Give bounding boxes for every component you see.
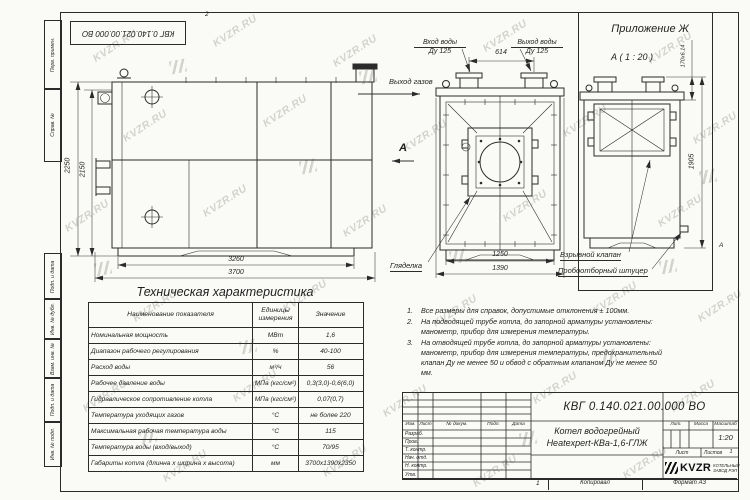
dim-614: 614 [486, 49, 516, 56]
product-name-line2: Heatexpert-КВа-1,6-ГЛЖ [547, 438, 648, 450]
sampling-fitting-label: Пробоотборный штуцер [558, 266, 648, 277]
copied-label: Копировал [548, 480, 642, 486]
col-podp: Подп. [481, 422, 506, 427]
note-number: 2. [407, 317, 421, 337]
sheet-label: Лист [663, 450, 701, 456]
table-cell: 0,3(3,0)-0,6(6,0) [299, 376, 362, 391]
table-cell: не более 220 [299, 408, 362, 423]
drawing-sheet: { "page": { "watermark_text": "KVZR.RU" … [0, 0, 750, 500]
dim-2150: 2150 [79, 162, 86, 178]
table-cell: мм [253, 456, 299, 471]
section-arrow-label: А [399, 142, 407, 154]
frame-label-text: Инв. № дубл. [50, 303, 56, 335]
table-cell: °С [253, 408, 299, 423]
sheets-label: Листов [701, 450, 725, 456]
mass-label: Масса [689, 422, 713, 427]
note-text: Все размеры для справок, допустимые откл… [421, 306, 665, 316]
table-cell: Диапазон рабочего регулирования [89, 344, 253, 359]
table-row: Температура воды (вход/выход)°С70/95 [89, 440, 363, 456]
col-list: Лист [418, 422, 433, 427]
dim-3260: 3260 [216, 256, 256, 263]
dim-1390: 1390 [482, 265, 518, 272]
appendix-title: Приложение Ж [595, 23, 705, 35]
note-item: 1.Все размеры для справок, допустимые от… [407, 306, 665, 316]
dim-2250: 2250 [64, 158, 71, 174]
water-inlet-dn: Ду 125 [414, 48, 466, 55]
kvzr-bars-icon [665, 462, 678, 474]
water-outlet-dn: Ду 125 [511, 48, 563, 55]
water-outlet-label: Выход воды Ду 125 [511, 39, 563, 55]
zone-bottom: 1 [536, 480, 540, 487]
table-cell: Температура уходящих газов [89, 408, 253, 423]
table-cell: МПа (кгс/см²) [253, 376, 299, 391]
spec-col-name: Наименование показателя [89, 303, 253, 327]
spec-col-value: Значение [299, 303, 362, 327]
table-cell: 0,07(0,7) [299, 392, 362, 407]
table-cell: 3700х1390х2350 [299, 456, 362, 471]
sheets-value: 1 [725, 449, 737, 455]
top-stamp: КВГ 0.140.021.00.000 ВО [70, 21, 186, 45]
company-name: КОТЕЛЬНЫЙ ЗАВОД РЭП [713, 463, 739, 474]
dim-1905: 1905 [688, 154, 695, 170]
gas-outlet-label: Выход газов [389, 77, 433, 86]
table-cell: Максимальная рабочая температура воды [89, 424, 253, 439]
table-cell: 115 [299, 424, 362, 439]
frame-label-podp-data-2: Подп. и дата [44, 377, 62, 423]
product-name: Котел водогрейный Heatexpert-КВа-1,6-ГЛЖ [531, 421, 663, 455]
table-cell: 70/95 [299, 440, 362, 455]
table-cell: °С [253, 440, 299, 455]
note-number: 1. [407, 306, 421, 316]
frame-label-inv-dubl: Инв. № дубл. [44, 298, 62, 340]
frame-label-inv-podl: Инв. № подл. [44, 421, 62, 467]
scale-label: Масштаб [713, 422, 738, 427]
table-cell: МПа (кгс/см²) [253, 392, 299, 407]
company-logo: KVZR КОТЕЛЬНЫЙ ЗАВОД РЭП [665, 458, 737, 478]
dim-170: 170x6.14 [680, 45, 686, 68]
row-razrab: Разраб. [405, 431, 423, 437]
frame-label-text: Перв. примен. [50, 38, 56, 72]
title-block: КВГ 0.140.021.00.000 ВО Котел водогрейны… [402, 392, 739, 480]
spec-table: Наименование показателя Единицы измерени… [88, 302, 364, 472]
spec-table-body: Номинальная мощностьМВт1,6Диапазон рабоч… [89, 328, 363, 471]
water-inlet-name: Вход воды [414, 39, 466, 48]
table-cell: % [253, 344, 299, 359]
frame-label-text: Справ. № [50, 113, 56, 137]
table-cell: МВт [253, 328, 299, 343]
table-cell: Рабочее давление воды [89, 376, 253, 391]
table-row: Диапазон рабочего регулирования%40-100 [89, 344, 363, 360]
spec-col-units: Единицы измерения [253, 303, 299, 327]
product-name-line1: Котел водогрейный [554, 426, 640, 438]
note-item: 2.На подводящей трубе котла, до запорной… [407, 317, 665, 337]
table-row: Номинальная мощностьМВт1,6 [89, 328, 363, 344]
note-text: На отводящей трубе котла, до запорной ар… [421, 338, 665, 378]
notes-block: 1.Все размеры для справок, допустимые от… [407, 306, 665, 380]
dim-3700: 3700 [216, 269, 256, 276]
table-row: Гидравлическое сопротивление котлаМПа (к… [89, 392, 363, 408]
col-izm: Изм. [403, 422, 418, 427]
frame-label-sprav: Справ. № [44, 88, 62, 162]
table-row: Максимальная рабочая температура воды°С1… [89, 424, 363, 440]
table-cell: °С [253, 424, 299, 439]
row-nkontr: Н. контр. [405, 463, 428, 469]
table-cell: Температура воды (вход/выход) [89, 440, 253, 455]
scale-value: 1:20 [713, 433, 738, 442]
water-inlet-label: Вход воды Ду 125 [414, 39, 466, 55]
table-cell: Расход воды [89, 360, 253, 375]
note-number: 3. [407, 338, 421, 378]
note-text: На подводящей трубе котла, до запорной а… [421, 317, 665, 337]
company-name-line2: ЗАВОД РЭП [713, 468, 739, 473]
row-tkontr: Т. контр. [405, 447, 427, 453]
zone-right: А [719, 242, 723, 249]
frame-label-podp-data-1: Подп. и дата [44, 253, 62, 300]
table-cell: Габариты котла (длинна х ширина х высота… [89, 456, 253, 471]
col-data: Дата [506, 422, 531, 427]
top-stamp-text: КВГ 0.140.021.00.000 ВО [82, 29, 175, 38]
row-prov: Пров. [405, 439, 418, 445]
kvzr-logo-text: KVZR [680, 462, 711, 474]
table-cell: 56 [299, 360, 362, 375]
spec-table-header: Наименование показателя Единицы измерени… [89, 303, 363, 328]
table-cell: Гидравлическое сопротивление котла [89, 392, 253, 407]
sight-glass-label: Гляделка [390, 261, 422, 272]
dim-1250: 1250 [482, 251, 518, 258]
row-utv: Утв. [405, 472, 416, 478]
appendix-view-label: А ( 1 : 20 ) [582, 52, 682, 62]
frame-label-perv-primen: Перв. примен. [44, 20, 62, 90]
frame-label-text: Подп. и дата [50, 260, 56, 292]
spec-table-title: Техническая характеристика [105, 285, 345, 299]
format-label: Формат А3 [642, 480, 737, 486]
zone-top: 2 [205, 11, 209, 18]
table-row: Рабочее давление водыМПа (кгс/см²)0,3(3,… [89, 376, 363, 392]
explosion-valve-label: Взрывной клапан [560, 250, 621, 261]
table-cell: м³/ч [253, 360, 299, 375]
water-outlet-name: Выход воды [511, 39, 563, 48]
frame-label-text: Взам. инв. № [50, 342, 56, 374]
col-docnum: № докум. [433, 422, 481, 427]
table-row: Расход водым³/ч56 [89, 360, 363, 376]
frame-label-vzam-inv: Взам. инв. № [44, 338, 62, 379]
doc-number: КВГ 0.140.021.00.000 ВО [531, 393, 738, 421]
note-item: 3.На отводящей трубе котла, до запорной … [407, 338, 665, 378]
table-row: Габариты котла (длинна х ширина х высота… [89, 456, 363, 471]
table-row: Температура уходящих газов°Сне более 220 [89, 408, 363, 424]
table-cell: 40-100 [299, 344, 362, 359]
lit-label: Лит. [663, 422, 689, 427]
table-cell: 1,6 [299, 328, 362, 343]
frame-label-text: Инв. № подл. [50, 428, 56, 460]
table-cell: Номинальная мощность [89, 328, 253, 343]
frame-label-text: Подп. и дата [50, 384, 56, 416]
row-nachotd: Нач. отд. [405, 455, 427, 461]
